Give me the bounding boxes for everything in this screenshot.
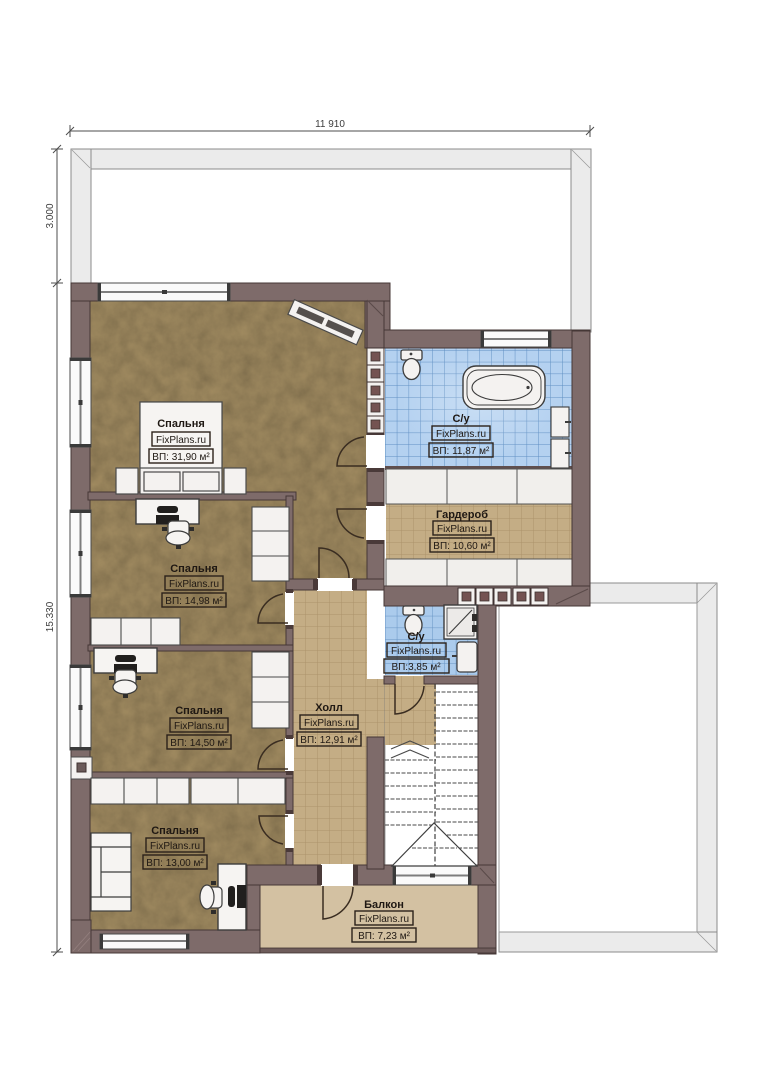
svg-text:ВП:3,85 м²: ВП:3,85 м²	[391, 662, 441, 673]
svg-text:ВП: 13,00 м²: ВП: 13,00 м²	[146, 858, 204, 869]
svg-text:3.000: 3.000	[45, 203, 56, 228]
svg-text:Гардероб: Гардероб	[436, 509, 488, 521]
svg-text:FixPlans.ru: FixPlans.ru	[169, 579, 219, 590]
svg-text:FixPlans.ru: FixPlans.ru	[174, 721, 224, 732]
svg-text:FixPlans.ru: FixPlans.ru	[436, 429, 486, 440]
svg-text:Холл: Холл	[315, 702, 343, 714]
svg-text:FixPlans.ru: FixPlans.ru	[359, 914, 409, 925]
svg-text:Спальня: Спальня	[157, 418, 205, 430]
svg-text:FixPlans.ru: FixPlans.ru	[156, 435, 206, 446]
svg-text:ВП: 12,91 м²: ВП: 12,91 м²	[300, 735, 358, 746]
svg-text:Балкон: Балкон	[364, 899, 404, 911]
svg-text:С/у: С/у	[452, 413, 470, 425]
svg-text:ВП: 10,60 м²: ВП: 10,60 м²	[433, 541, 491, 552]
svg-text:ВП: 14,98 м²: ВП: 14,98 м²	[165, 596, 223, 607]
svg-text:ВП: 14,50 м²: ВП: 14,50 м²	[170, 738, 228, 749]
svg-text:FixPlans.ru: FixPlans.ru	[391, 646, 441, 657]
svg-text:ВП: 7,23 м²: ВП: 7,23 м²	[358, 931, 411, 942]
svg-text:11 910: 11 910	[315, 119, 345, 130]
svg-text:Спальня: Спальня	[170, 563, 218, 575]
svg-text:ВП: 11,87 м²: ВП: 11,87 м²	[433, 446, 490, 457]
svg-text:ВП: 31,90 м²: ВП: 31,90 м²	[152, 452, 210, 463]
svg-text:Спальня: Спальня	[175, 705, 223, 717]
svg-text:FixPlans.ru: FixPlans.ru	[304, 718, 354, 729]
svg-text:15.330: 15.330	[45, 601, 56, 632]
svg-text:С/у: С/у	[407, 631, 425, 643]
svg-text:FixPlans.ru: FixPlans.ru	[437, 524, 487, 535]
svg-text:FixPlans.ru: FixPlans.ru	[150, 841, 200, 852]
svg-text:Спальня: Спальня	[151, 825, 199, 837]
